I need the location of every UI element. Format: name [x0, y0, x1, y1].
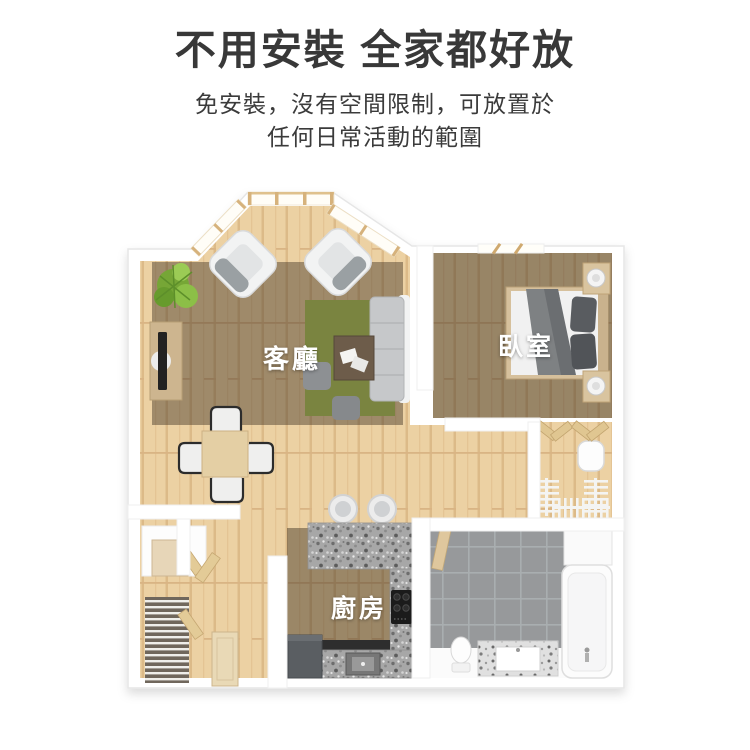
bar-stool [329, 495, 357, 523]
coffee-table [334, 336, 374, 380]
floorplan: 客廳 臥室 廚房 [0, 0, 750, 750]
cooktop [391, 590, 412, 624]
nightstand [583, 263, 610, 294]
radiator [145, 597, 189, 683]
bath-cabinet [564, 531, 612, 565]
dining-chair [247, 443, 273, 473]
bathroom [430, 529, 612, 678]
dining-chair [179, 443, 205, 473]
bedroom-window [478, 243, 544, 255]
dining-chair [211, 476, 243, 502]
ottoman [332, 396, 360, 420]
room-label-kitchen: 廚房 [331, 589, 387, 625]
toilet [451, 637, 471, 672]
bathtub [562, 565, 612, 678]
vanity-sink [478, 641, 558, 676]
room-label-living: 客廳 [263, 339, 321, 376]
refrigerator [288, 635, 322, 678]
bar-stool [368, 495, 396, 523]
sofa [370, 295, 410, 403]
utility-sink [578, 441, 604, 471]
bay-window-top [248, 192, 334, 205]
nightstand [583, 371, 610, 402]
dining-chair [211, 407, 241, 433]
kitchen-sink [346, 653, 380, 675]
room-label-bedroom: 臥室 [498, 327, 554, 363]
kitchen-counter-top [308, 523, 412, 569]
promo-page: 不用安裝 全家都好放 免安裝，沒有空間限制，可放置於 任何日常活動的範圍 [0, 0, 750, 750]
bathroom-tile-floor [430, 531, 570, 648]
pillow [570, 333, 597, 370]
tv-console [150, 322, 182, 400]
floorplan-drawing [0, 0, 750, 750]
pillow [570, 296, 597, 333]
dining-table [202, 431, 248, 477]
entry-door [212, 632, 238, 686]
